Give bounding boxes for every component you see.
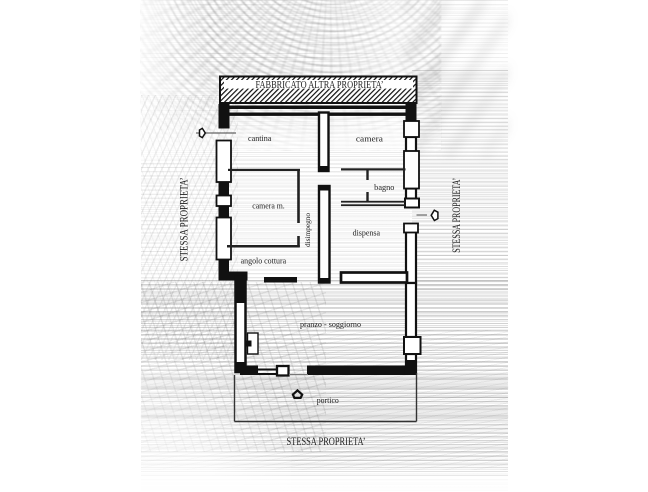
svg-text:FABBRICATO ALTRA PROPRIETA’: FABBRICATO ALTRA PROPRIETA’ — [256, 80, 384, 91]
svg-text:camera m.: camera m. — [252, 202, 285, 211]
svg-text:dispensa: dispensa — [353, 229, 381, 238]
svg-text:angolo cottura: angolo cottura — [241, 257, 287, 266]
svg-text:STESSA PROPRIETA’: STESSA PROPRIETA’ — [177, 177, 191, 261]
svg-text:portico: portico — [317, 396, 339, 405]
svg-text:bagno: bagno — [374, 183, 394, 192]
svg-text:STESSA PROPRIETA’: STESSA PROPRIETA’ — [449, 178, 463, 253]
svg-text:STESSA PROPRIETA’: STESSA PROPRIETA’ — [287, 436, 366, 448]
svg-text:camera: camera — [356, 135, 384, 144]
svg-text:cantina: cantina — [248, 134, 272, 143]
svg-text:pranzo - soggiorno: pranzo - soggiorno — [300, 320, 361, 329]
svg-text:disimpegno: disimpegno — [303, 213, 312, 247]
